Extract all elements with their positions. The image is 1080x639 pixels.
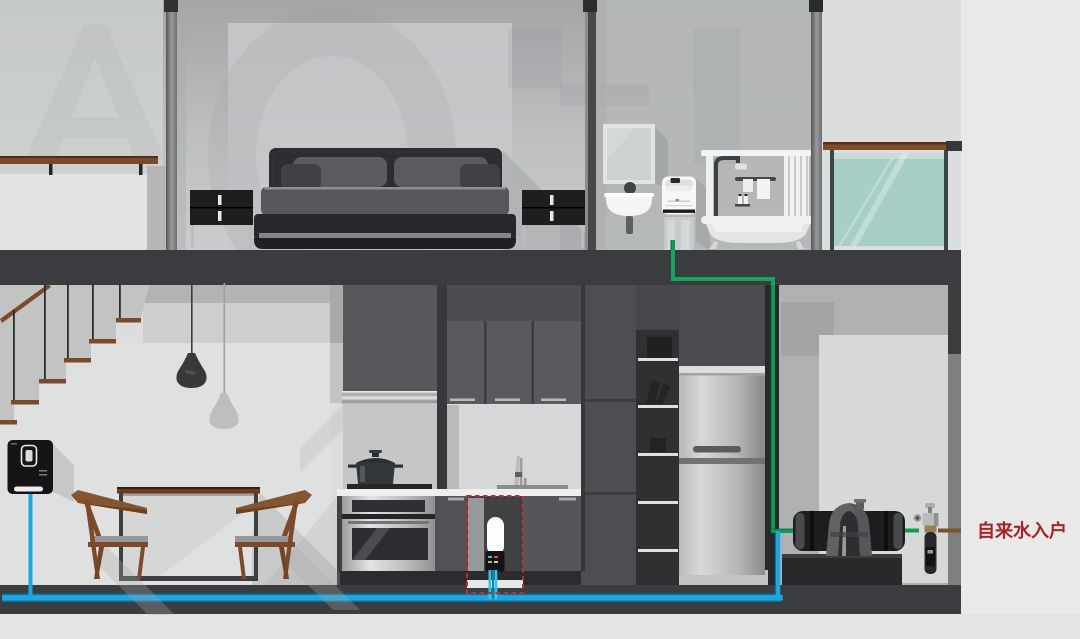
- svg-text:自来水入户: 自来水入户: [977, 520, 1067, 541]
